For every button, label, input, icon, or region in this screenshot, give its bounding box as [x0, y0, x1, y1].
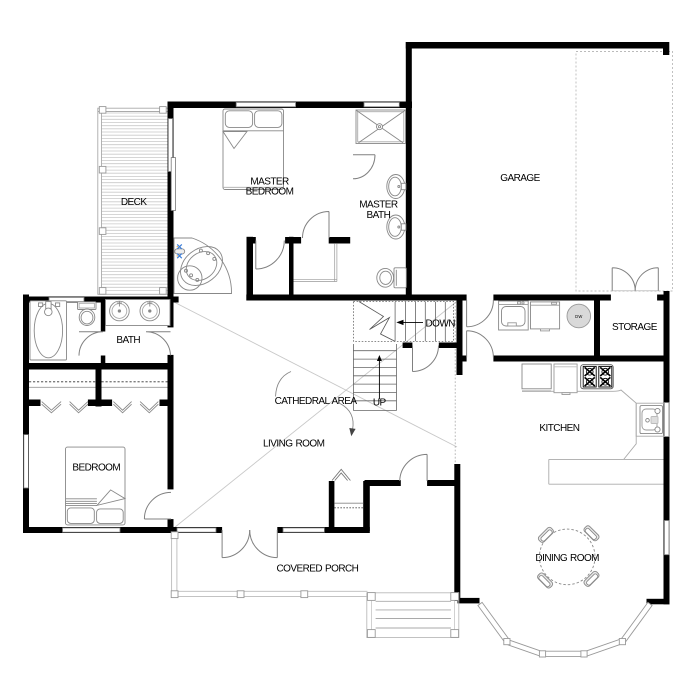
svg-text:LIVING ROOM: LIVING ROOM: [263, 439, 325, 450]
svg-text:BEDROOM: BEDROOM: [72, 462, 120, 473]
svg-text:COVERED PORCH: COVERED PORCH: [276, 563, 358, 574]
svg-text:DINING ROOM: DINING ROOM: [535, 553, 599, 564]
svg-text:KITCHEN: KITCHEN: [539, 423, 579, 434]
svg-text:CATHEDRAL AREA: CATHEDRAL AREA: [275, 396, 358, 407]
svg-text:DECK: DECK: [121, 197, 147, 208]
svg-text:BATH: BATH: [367, 210, 391, 221]
svg-text:STORAGE: STORAGE: [612, 322, 658, 333]
svg-text:DW: DW: [575, 314, 582, 319]
svg-text:BATH: BATH: [116, 335, 140, 346]
svg-text:BEDROOM: BEDROOM: [246, 187, 294, 198]
svg-text:DOWN: DOWN: [425, 319, 455, 330]
svg-text:GARAGE: GARAGE: [500, 173, 540, 184]
svg-text:UP: UP: [373, 398, 387, 409]
